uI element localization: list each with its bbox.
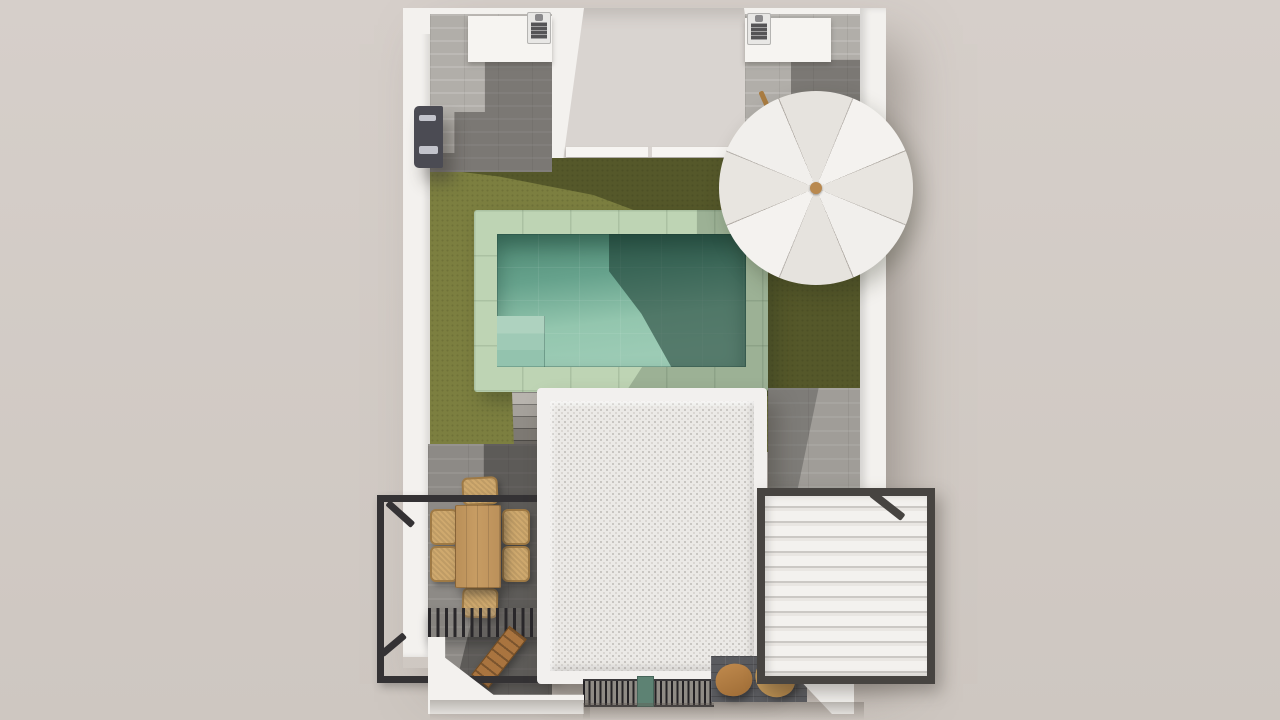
grill-chimney-icon	[755, 15, 763, 22]
bbq-grill-right-icon	[747, 13, 771, 45]
ground-shadow	[430, 700, 590, 720]
flat-roof	[537, 388, 767, 684]
grill-chimney-icon	[535, 14, 543, 21]
ground-shadow	[714, 702, 864, 720]
umbrella-knob	[810, 182, 822, 194]
pool-steps	[497, 316, 545, 367]
bbq-grill-left-icon	[527, 12, 551, 44]
grill-grate-icon	[531, 22, 547, 39]
shower-slot	[419, 115, 436, 121]
render-stage	[0, 0, 1280, 720]
louvered-pergola	[757, 488, 935, 684]
ground-shadow	[583, 703, 714, 720]
courtyard-window-divider	[648, 147, 652, 157]
pergola-frame	[377, 495, 558, 683]
shower-slot	[419, 146, 438, 154]
outdoor-shower-unit	[414, 106, 443, 168]
grill-grate-icon	[751, 23, 767, 40]
